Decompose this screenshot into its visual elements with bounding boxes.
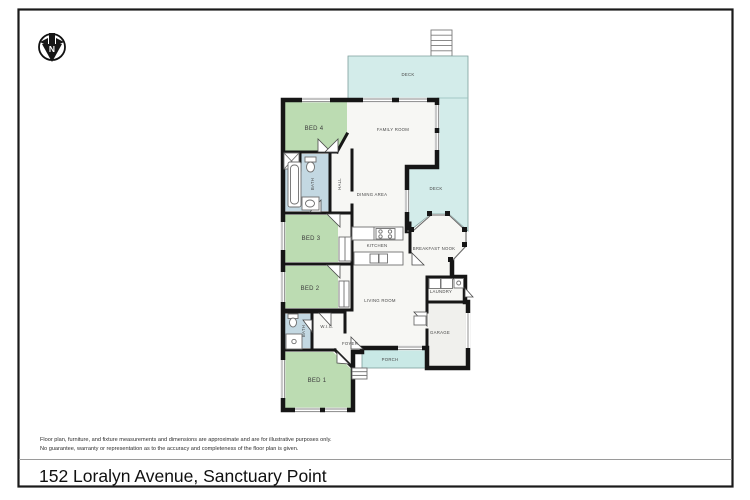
vanity-main xyxy=(302,197,319,210)
label-hall: HALL xyxy=(337,178,342,190)
washer-dryer xyxy=(429,279,464,289)
label-family-room: FAMILY ROOM xyxy=(377,127,409,132)
room-garage xyxy=(429,304,466,366)
deck-stairs xyxy=(431,30,452,56)
compass-letter: N xyxy=(49,44,55,54)
toilet-main xyxy=(305,157,316,172)
floorplan-canvas: N xyxy=(0,0,750,500)
label-bed4: BED 4 xyxy=(305,126,324,132)
label-bed2: BED 2 xyxy=(301,286,320,292)
label-deck-top: DECK xyxy=(402,72,415,77)
label-bath-ensuite: BATH xyxy=(301,325,306,337)
floorplan-page: { "title_bar": { "address": "152 Loralyn… xyxy=(0,0,750,500)
north-arrow-icon: N xyxy=(39,33,65,62)
label-porch: PORCH xyxy=(382,357,399,362)
label-breakfast-nook: BREAKFAST NOOK xyxy=(413,246,456,251)
stove xyxy=(376,229,395,240)
disclaimer-line-2: No guarantee, warranty or representation… xyxy=(40,445,332,454)
label-foyer: FOYER xyxy=(342,341,358,346)
label-laundry: LAUNDRY xyxy=(430,289,452,294)
garage-step xyxy=(414,316,426,325)
bathtub xyxy=(288,162,301,207)
label-kitchen: KITCHEN xyxy=(367,243,388,248)
disclaimer-line-1: Floor plan, furniture, and fixture measu… xyxy=(40,436,332,445)
label-deck-side: DECK xyxy=(430,186,443,191)
property-address: 152 Loralyn Avenue, Sanctuary Point xyxy=(39,466,327,487)
label-dining: DINING AREA xyxy=(357,192,387,197)
kitchen-island xyxy=(354,252,403,265)
label-bath-main: BATH xyxy=(310,178,315,190)
label-bed3: BED 3 xyxy=(302,236,321,242)
bed2-wardrobe xyxy=(339,281,349,307)
disclaimer-text: Floor plan, furniture, and fixture measu… xyxy=(40,436,332,454)
label-garage: GARAGE xyxy=(430,330,450,335)
shower xyxy=(286,334,302,349)
porch-steps xyxy=(352,368,367,379)
label-living: LIVING ROOM xyxy=(364,298,396,303)
bed3-wardrobe xyxy=(339,237,351,261)
label-wic: W.I.C. xyxy=(320,324,333,329)
label-bed1: BED 1 xyxy=(308,378,327,384)
